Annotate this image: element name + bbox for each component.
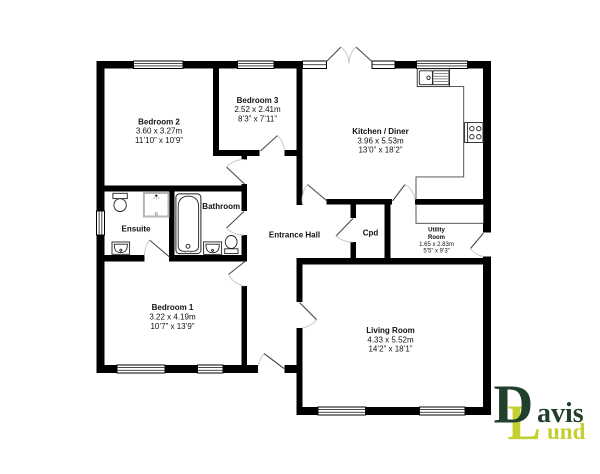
svg-text:Bathroom: Bathroom — [202, 202, 240, 211]
svg-text:4.33 x 5.52m: 4.33 x 5.52m — [367, 335, 414, 344]
svg-text:Kitchen / Diner: Kitchen / Diner — [352, 127, 408, 136]
svg-text:3.96 x 5.53m: 3.96 x 5.53m — [357, 136, 404, 145]
svg-text:Utility: Utility — [428, 228, 445, 234]
svg-text:8’3” x 7’11”: 8’3” x 7’11” — [238, 114, 277, 123]
svg-text:Ensuite: Ensuite — [122, 224, 151, 233]
svg-text:5’5” x 9’3”: 5’5” x 9’3” — [423, 248, 449, 254]
svg-text:Room: Room — [428, 235, 445, 241]
svg-text:11’10” x 10’9”: 11’10” x 10’9” — [135, 136, 183, 145]
svg-text:2.52 x 2.41m: 2.52 x 2.41m — [234, 105, 281, 114]
svg-text:14’2” x 18’1”: 14’2” x 18’1” — [368, 345, 412, 354]
svg-text:Cpd: Cpd — [363, 229, 379, 238]
svg-text:Bedroom 2: Bedroom 2 — [138, 117, 180, 126]
svg-text:13’0” x 18’2”: 13’0” x 18’2” — [358, 146, 402, 155]
svg-text:10’7” x 13’9”: 10’7” x 13’9” — [150, 322, 194, 331]
svg-text:avis: avis — [537, 398, 584, 429]
svg-text:1.65 x 2.83m: 1.65 x 2.83m — [419, 242, 454, 248]
svg-text:Living Room: Living Room — [366, 326, 414, 335]
svg-text:3.60 x 3.27m: 3.60 x 3.27m — [136, 127, 183, 136]
svg-text:Entrance Hall: Entrance Hall — [269, 231, 320, 240]
svg-text:Bedroom 3: Bedroom 3 — [237, 96, 279, 105]
svg-text:3.22 x 4.19m: 3.22 x 4.19m — [149, 313, 196, 322]
svg-text:Bedroom 1: Bedroom 1 — [152, 303, 194, 312]
svg-text:D: D — [494, 374, 534, 435]
